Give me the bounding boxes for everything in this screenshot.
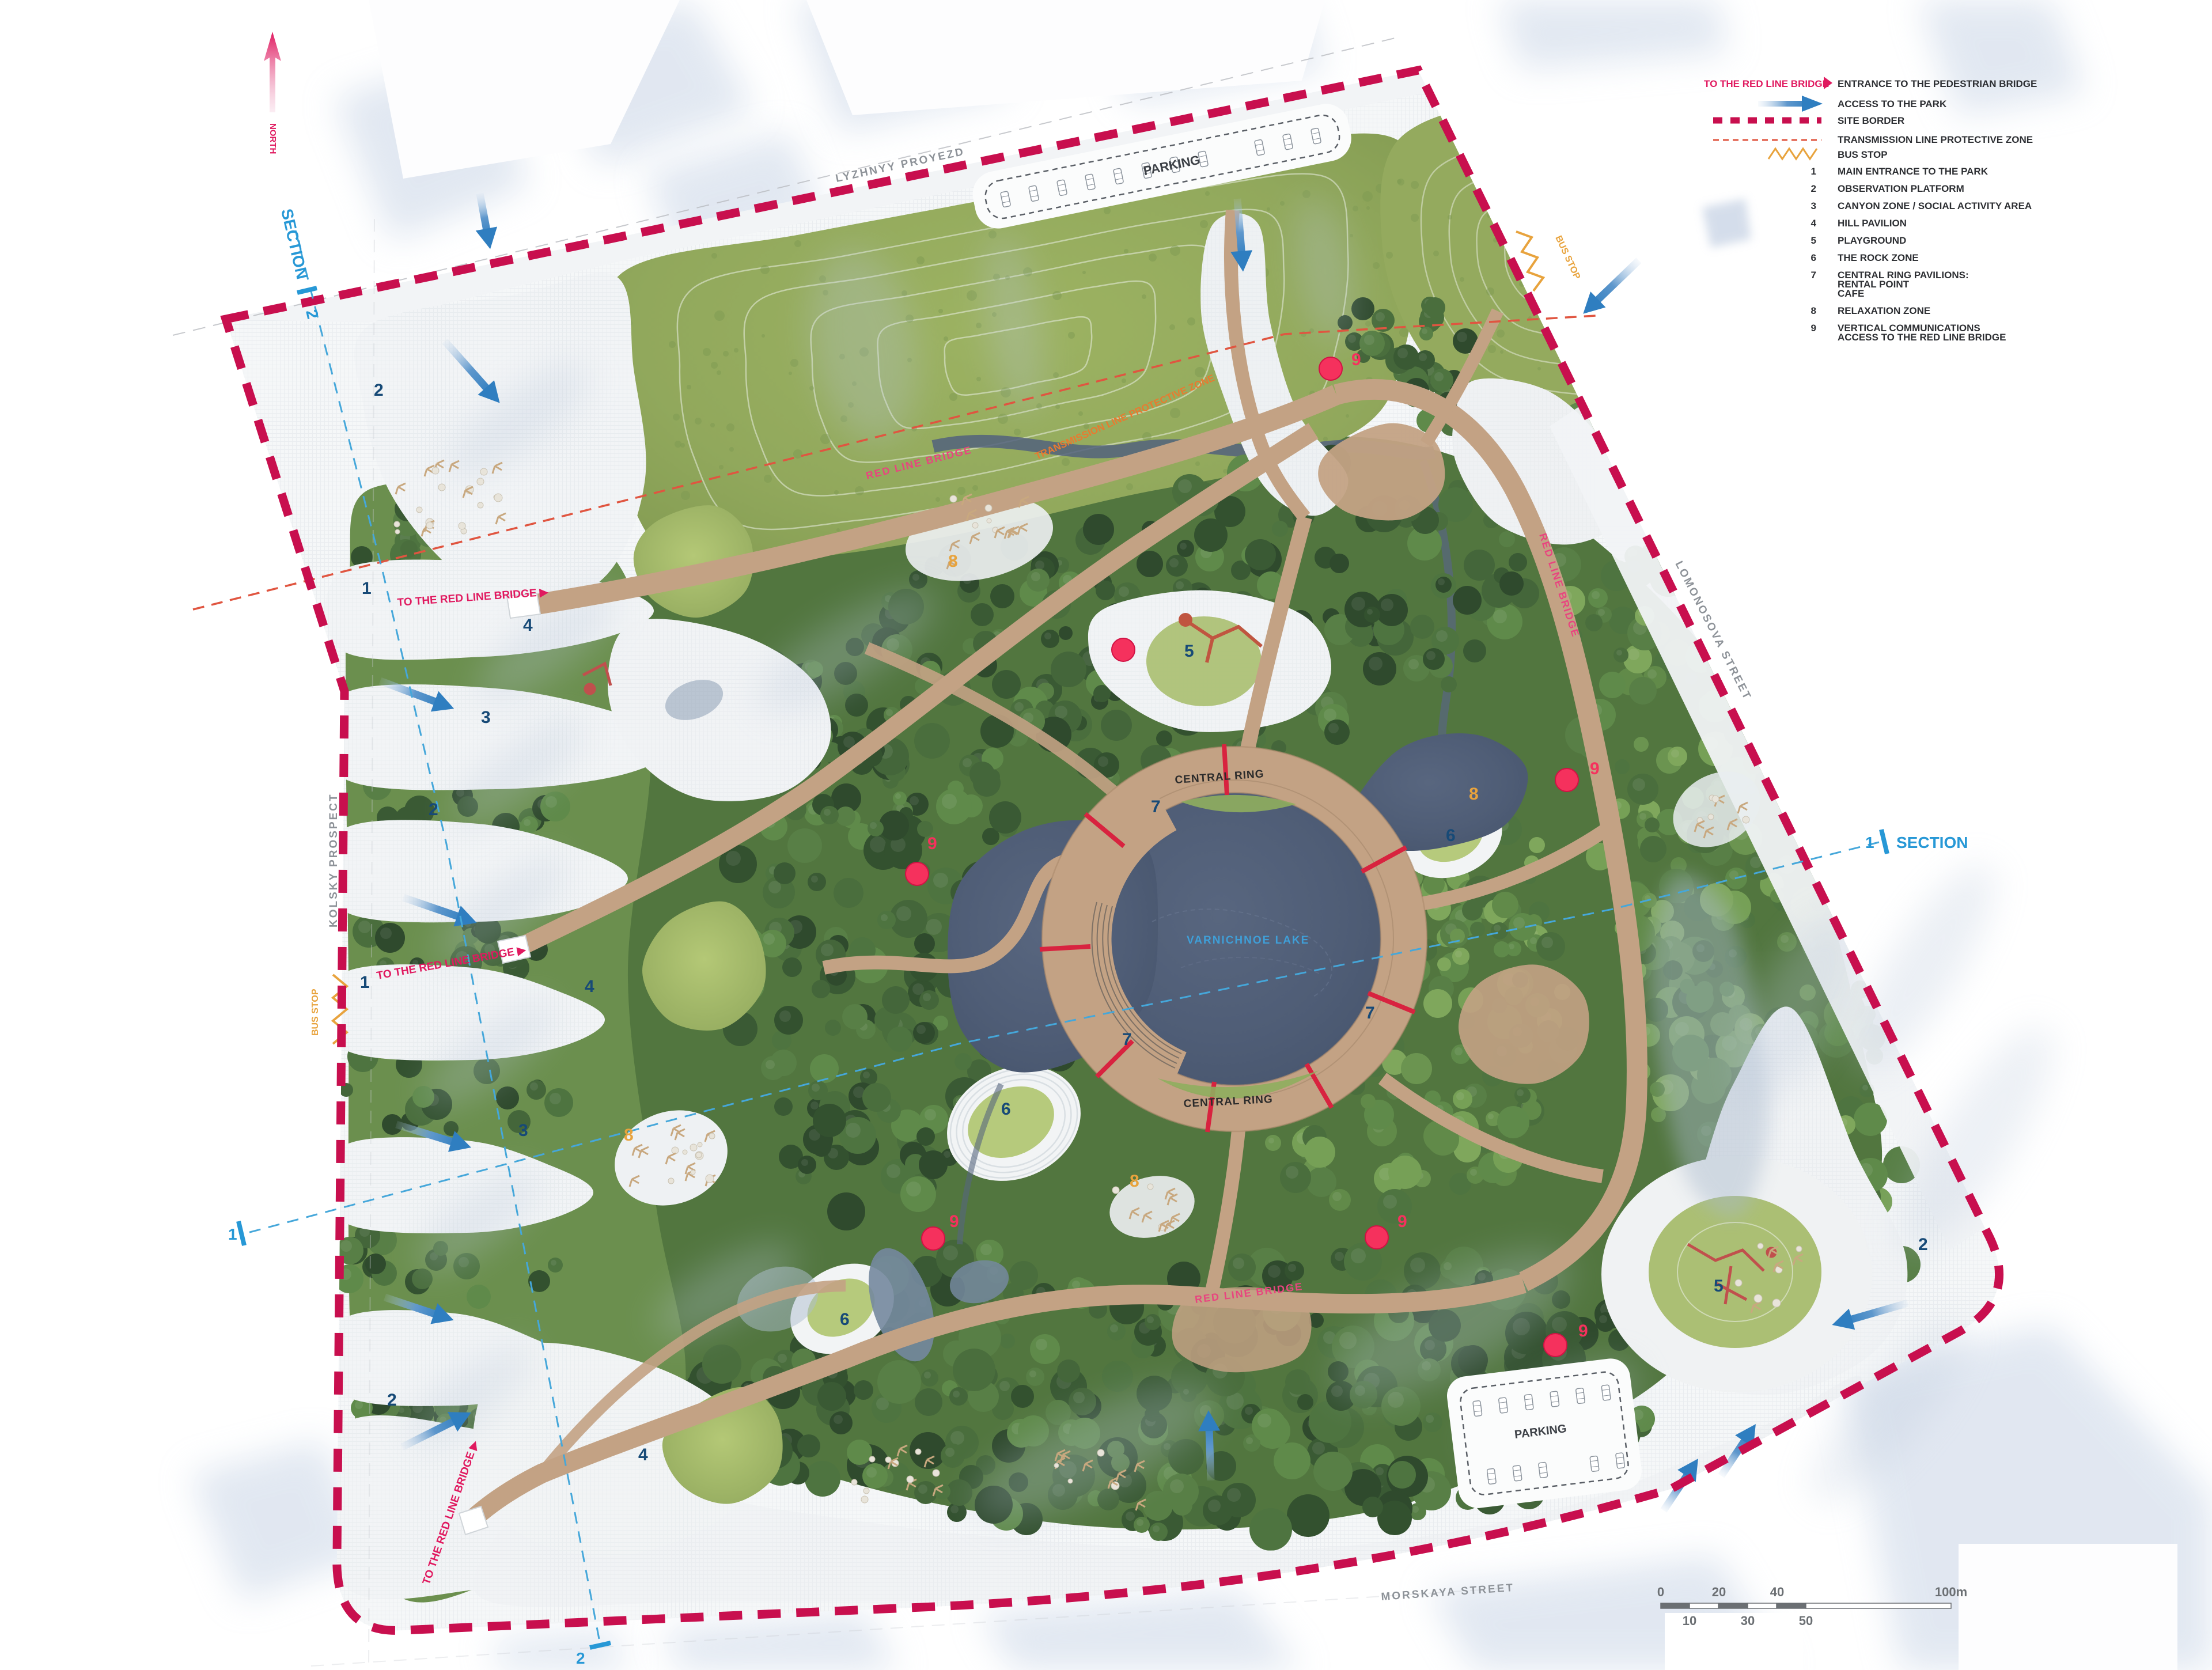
svg-text:10: 10 <box>1683 1614 1696 1628</box>
svg-text:1: 1 <box>360 973 370 992</box>
svg-text:8: 8 <box>1811 305 1816 316</box>
svg-text:5: 5 <box>1184 642 1194 661</box>
svg-text:8: 8 <box>1130 1172 1139 1191</box>
svg-text:6: 6 <box>840 1310 850 1329</box>
svg-text:6: 6 <box>1001 1100 1011 1119</box>
svg-text:9: 9 <box>1811 323 1816 334</box>
svg-text:3: 3 <box>1811 200 1816 211</box>
svg-text:2: 2 <box>576 1649 585 1667</box>
svg-text:50: 50 <box>1799 1614 1813 1628</box>
svg-text:MAIN ENTRANCE TO THE PARK: MAIN ENTRANCE TO THE PARK <box>1838 166 1988 177</box>
svg-text:3: 3 <box>518 1121 528 1140</box>
svg-text:0: 0 <box>1657 1585 1664 1599</box>
svg-text:1: 1 <box>228 1225 237 1243</box>
svg-text:9: 9 <box>1578 1321 1588 1340</box>
svg-text:1: 1 <box>1811 166 1816 177</box>
svg-text:SECTION: SECTION <box>1896 834 1968 851</box>
svg-text:8: 8 <box>948 552 958 571</box>
svg-text:20: 20 <box>1712 1585 1726 1599</box>
svg-text:4: 4 <box>585 977 594 996</box>
svg-text:5: 5 <box>1714 1277 1724 1296</box>
svg-text:NORTH: NORTH <box>268 123 278 154</box>
svg-text:2: 2 <box>387 1391 397 1410</box>
svg-text:7: 7 <box>1122 1030 1132 1049</box>
svg-text:BUS STOP: BUS STOP <box>1838 149 1888 160</box>
svg-text:TRANSMISSION LINE PROTECTIVE Z: TRANSMISSION LINE PROTECTIVE ZONE <box>1838 134 2033 145</box>
svg-text:5: 5 <box>1811 235 1816 246</box>
svg-text:2: 2 <box>1811 183 1816 194</box>
svg-text:KOLSKY PROSPECT: KOLSKY PROSPECT <box>328 793 340 927</box>
svg-text:30: 30 <box>1741 1614 1755 1628</box>
svg-text:4: 4 <box>1811 218 1817 229</box>
svg-text:7: 7 <box>1811 270 1816 281</box>
svg-text:7: 7 <box>1151 797 1161 816</box>
svg-text:2: 2 <box>429 800 438 819</box>
svg-text:8: 8 <box>624 1126 634 1145</box>
svg-text:THE ROCK ZONE: THE ROCK ZONE <box>1838 252 1919 263</box>
svg-text:9: 9 <box>1590 759 1600 778</box>
svg-text:4: 4 <box>638 1445 648 1464</box>
svg-text:1: 1 <box>362 579 372 598</box>
svg-text:6: 6 <box>1446 826 1456 845</box>
svg-text:100m: 100m <box>1935 1585 1967 1599</box>
svg-text:RELAXATION ZONE: RELAXATION ZONE <box>1838 305 1930 316</box>
svg-text:1: 1 <box>1865 834 1874 851</box>
svg-text:2: 2 <box>1918 1235 1928 1254</box>
svg-text:9: 9 <box>927 834 937 853</box>
svg-text:SITE BORDER: SITE BORDER <box>1838 115 1904 126</box>
svg-text:2: 2 <box>374 381 384 400</box>
svg-text:7: 7 <box>1365 1003 1375 1023</box>
svg-text:9: 9 <box>1351 350 1361 369</box>
svg-text:9: 9 <box>1397 1212 1407 1231</box>
svg-text:6: 6 <box>1811 252 1816 263</box>
svg-text:HILL PAVILION: HILL PAVILION <box>1838 218 1907 229</box>
svg-text:VARNICHNOE LAKE: VARNICHNOE LAKE <box>1187 934 1309 946</box>
svg-text:TO THE RED LINE BRIDGE: TO THE RED LINE BRIDGE <box>1704 78 1829 89</box>
svg-text:BUS STOP: BUS STOP <box>310 989 320 1036</box>
svg-text:PLAYGROUND: PLAYGROUND <box>1838 235 1906 246</box>
svg-text:3: 3 <box>481 708 491 727</box>
svg-text:OBSERVATION PLATFORM: OBSERVATION PLATFORM <box>1838 183 1964 194</box>
svg-text:8: 8 <box>1469 785 1479 804</box>
svg-text:CANYON ZONE / SOCIAL ACTIVITY: CANYON ZONE / SOCIAL ACTIVITY AREA <box>1838 200 2032 211</box>
svg-text:40: 40 <box>1770 1585 1784 1599</box>
svg-text:ENTRANCE TO THE PEDESTRIAN BRI: ENTRANCE TO THE PEDESTRIAN BRIDGE <box>1838 78 2037 89</box>
svg-text:4: 4 <box>523 616 533 635</box>
svg-text:9: 9 <box>949 1212 959 1231</box>
svg-text:ACCESS TO THE PARK: ACCESS TO THE PARK <box>1838 99 1947 109</box>
svg-text:ACCESS TO THE RED LINE BRIDGE: ACCESS TO THE RED LINE BRIDGE <box>1838 332 2006 343</box>
svg-text:CAFE: CAFE <box>1838 288 1864 299</box>
